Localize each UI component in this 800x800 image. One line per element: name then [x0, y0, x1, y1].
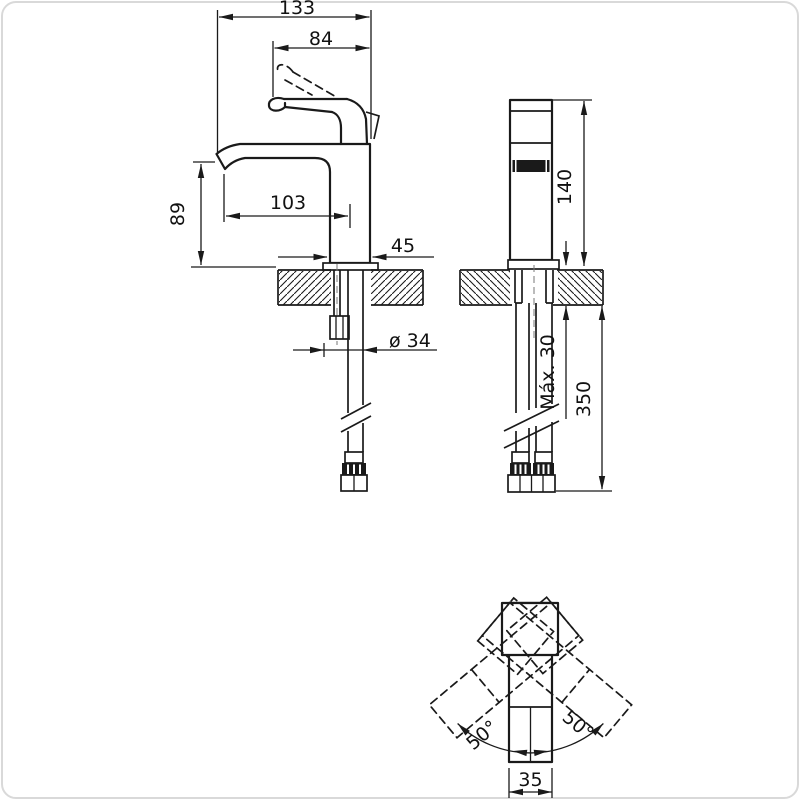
dim-body-width-plan: 35	[509, 768, 552, 798]
dim-total-projection-label: 133	[279, 0, 315, 19]
dim-body-width-plan-label: 35	[518, 769, 542, 791]
dim-spout-height: 89	[167, 162, 276, 267]
hose-collar	[345, 452, 363, 463]
mounting-nut	[330, 316, 349, 339]
drawing-canvas: 133 84 103 89 45	[0, 0, 800, 800]
handle-knuckle-right	[347, 99, 367, 144]
deck-hatch-left-side	[461, 271, 510, 304]
dim-hose-length-label: 350	[573, 381, 595, 417]
dim-base-width-label: 45	[391, 235, 415, 257]
handle-tip-hook	[269, 98, 285, 111]
handle-raised-line1	[293, 72, 338, 98]
dim-hole-diameter-label: ø 34	[389, 330, 431, 352]
plan-view: 50° 50° 35	[425, 597, 636, 798]
handle-front	[269, 98, 379, 144]
handle-raised-hook	[277, 65, 293, 72]
countertop-front	[278, 270, 423, 305]
handle-underside	[285, 107, 332, 112]
dim-swing-left-label: 50°	[462, 716, 502, 755]
side-view: 140 Máx. 30 350	[460, 100, 612, 492]
threaded-rod-and-nut	[330, 264, 349, 345]
image-border	[2, 2, 798, 798]
dim-swing-right-label: 50°	[558, 706, 598, 745]
deck-hatch-right	[371, 271, 423, 305]
technical-drawing-svg: 133 84 103 89 45	[0, 0, 800, 800]
dim-spout-projection-label: 84	[309, 28, 333, 50]
body-column-side	[510, 100, 552, 260]
handle-knuckle-left	[332, 112, 341, 144]
handle-raised-dashed	[277, 65, 338, 98]
handle-side-spur	[366, 112, 379, 139]
outlet-band-tick-left	[513, 160, 516, 172]
supply-hose-front	[341, 270, 371, 491]
dim-body-height: 140	[553, 100, 592, 266]
dim-body-height-label: 140	[554, 169, 576, 205]
dim-max-deck-thickness-label: Máx. 30	[537, 334, 559, 410]
hose1-collar	[512, 452, 529, 463]
deck-hatch-left	[279, 271, 331, 305]
countertop-side	[460, 270, 603, 305]
base-flange-front	[323, 263, 378, 270]
front-view: 133 84 103 89 45	[167, 0, 437, 491]
handle-raised-line2	[285, 80, 312, 95]
dim-spout-projection: 84	[273, 28, 370, 97]
hose-break-slashes	[341, 403, 371, 432]
dim-hole-diameter: ø 34	[293, 330, 437, 357]
dim-spout-height-label: 89	[167, 202, 189, 226]
deck-hatch-right-side	[558, 271, 602, 304]
dim-spout-reach-label: 103	[270, 192, 306, 214]
spout-outlet-band	[517, 160, 546, 172]
dim-total-projection: 133	[218, 0, 372, 152]
rib-slits-side	[516, 465, 549, 475]
hose2-collar	[535, 452, 552, 463]
outlet-band-tick-right	[547, 160, 550, 172]
dim-hose-length: 350	[556, 306, 612, 491]
